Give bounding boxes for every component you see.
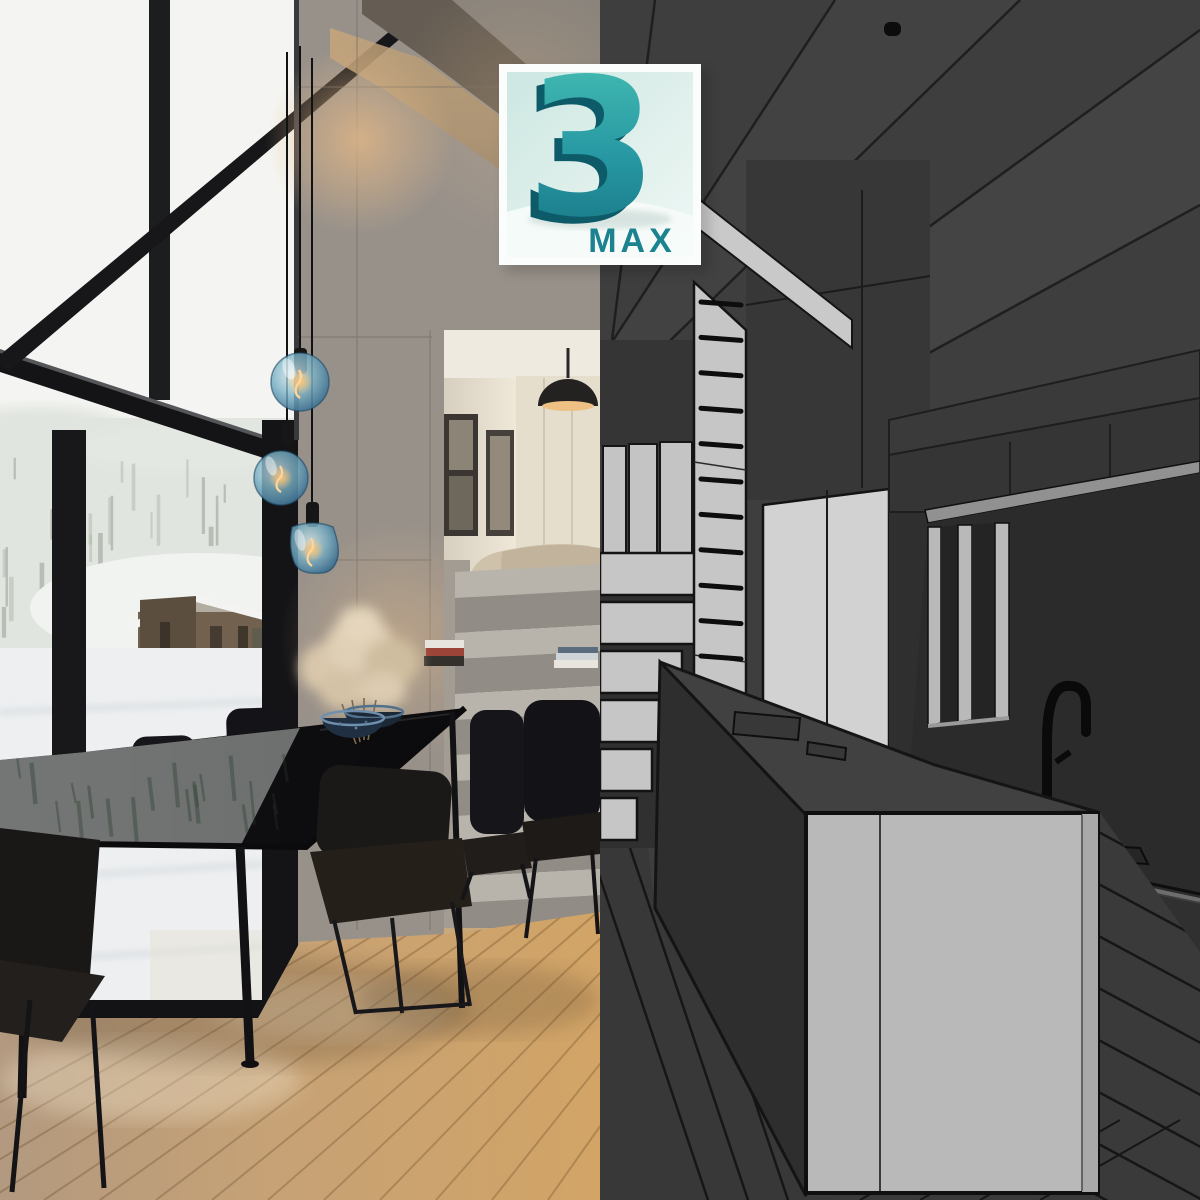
scene: 3 3 MAX bbox=[0, 0, 1200, 1200]
books-on-step bbox=[554, 647, 598, 668]
drawer-handle bbox=[701, 479, 741, 482]
pendant-socket bbox=[281, 420, 294, 446]
pendant-glass-globe bbox=[254, 451, 308, 505]
wire-step-slab bbox=[600, 700, 667, 742]
drawer-handle bbox=[701, 621, 741, 624]
wire-step-slab bbox=[600, 602, 697, 644]
drawer-handle bbox=[701, 656, 741, 659]
drawer-handle bbox=[701, 373, 741, 376]
drawer-handle bbox=[701, 337, 741, 340]
wire-window bbox=[928, 523, 1009, 726]
drawer-handle bbox=[701, 444, 741, 447]
island-end-panel bbox=[806, 813, 1098, 1193]
chair-shadow bbox=[360, 965, 600, 1035]
wire-step-slab bbox=[600, 798, 637, 840]
drawer-handle bbox=[701, 514, 741, 517]
drawer-handle bbox=[701, 408, 741, 411]
island-hob bbox=[733, 712, 800, 740]
split-render-composite: 3 3 MAX bbox=[0, 0, 1200, 1200]
drawer-handle bbox=[701, 302, 741, 305]
wire-step-slab bbox=[600, 749, 652, 791]
drawer-handle bbox=[701, 550, 741, 553]
ceiling-spot-light bbox=[884, 22, 901, 36]
drawer-handle bbox=[701, 585, 741, 588]
lamp-glow bbox=[542, 401, 594, 411]
island-panel-edge bbox=[1082, 814, 1098, 1192]
logo-wordmark: MAX bbox=[588, 222, 676, 260]
books-on-shelf bbox=[424, 640, 464, 666]
upper-mullion bbox=[149, 0, 170, 400]
pendant-glass-bell bbox=[291, 523, 339, 573]
logo-badge: 3 3 MAX bbox=[499, 38, 709, 273]
wire-door-panels bbox=[603, 442, 692, 565]
pendant-glass-globe bbox=[271, 353, 329, 411]
